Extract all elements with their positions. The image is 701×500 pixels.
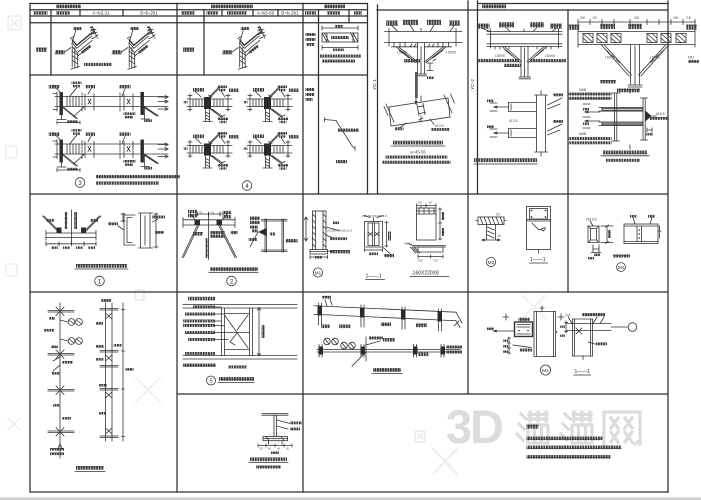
svg-text:50: 50	[429, 201, 433, 205]
svg-text:4: 4	[245, 184, 249, 190]
svg-text:-160X220X8: -160X220X8	[411, 271, 439, 277]
svg-text:B=b-2b1: B=b-2b1	[281, 11, 299, 16]
svg-text:#13.5: #13.5	[656, 112, 665, 116]
svg-text:30: 30	[260, 447, 264, 451]
svg-text:120: 120	[418, 201, 423, 205]
svg-text:2=6: 2=6	[565, 313, 571, 317]
svg-text:5: 5	[209, 379, 212, 385]
svg-text:10: 10	[498, 234, 502, 238]
svg-text:A=b3-60: A=b3-60	[257, 11, 275, 16]
svg-text:3D: 3D	[446, 400, 502, 453]
svg-text:75: 75	[199, 211, 203, 215]
svg-text:200: 200	[634, 16, 640, 20]
svg-text:L50X5: L50X5	[397, 51, 407, 55]
svg-text:6M12: 6M12	[404, 242, 412, 246]
svg-text:1——1: 1——1	[366, 274, 382, 280]
svg-text:M3: M3	[488, 260, 495, 265]
svg-text:L50X5: L50X5	[650, 56, 660, 60]
svg-text:2C180x70x20x1.5: 2C180x70x20x1.5	[327, 229, 352, 233]
svg-text:M6B: M6B	[579, 132, 587, 136]
svg-text:1: 1	[98, 279, 102, 285]
svg-text:200: 200	[580, 16, 586, 20]
svg-text:#13.5: #13.5	[509, 119, 518, 123]
svg-text:L50X5: L50X5	[605, 56, 615, 60]
svg-text:M4: M4	[618, 265, 625, 270]
svg-text:3: 3	[78, 181, 82, 187]
svg-text:200: 200	[673, 16, 679, 20]
svg-text:2C180x70x20x1.5: 2C180x70x20x1.5	[362, 214, 387, 218]
svg-text:60: 60	[277, 447, 281, 451]
svg-text:2#13.5: 2#13.5	[586, 218, 596, 222]
svg-text:L50X5: L50X5	[495, 54, 505, 58]
svg-text:M1: M1	[315, 271, 322, 276]
svg-text:150: 150	[418, 259, 423, 263]
svg-text:B=b-2b1: B=b-2b1	[140, 11, 158, 16]
svg-text:a=45-55: a=45-55	[410, 150, 426, 155]
svg-text:200: 200	[686, 16, 692, 20]
svg-text:M6B: M6B	[579, 88, 587, 92]
svg-text:1——1: 1——1	[575, 369, 591, 375]
svg-text:2: 2	[230, 279, 234, 285]
svg-text:A=b2-11: A=b2-11	[92, 11, 110, 16]
svg-text:M12: M12	[688, 56, 694, 60]
svg-text:1——1: 1——1	[530, 257, 546, 263]
svg-text:L50X5: L50X5	[545, 54, 555, 58]
svg-text:60: 60	[268, 447, 272, 451]
svg-text:M2: M2	[542, 368, 549, 373]
svg-text:200: 200	[592, 16, 598, 20]
svg-text:10: 10	[496, 213, 500, 217]
svg-text:#13.5: #13.5	[435, 124, 444, 128]
svg-text:30: 30	[286, 447, 290, 451]
svg-text:YC-1: YC-1	[372, 79, 378, 90]
svg-text:YC-2: YC-2	[470, 79, 476, 90]
svg-text:L50X5: L50X5	[446, 51, 456, 55]
svg-text:75: 75	[211, 211, 215, 215]
svg-text:150: 150	[433, 259, 438, 263]
